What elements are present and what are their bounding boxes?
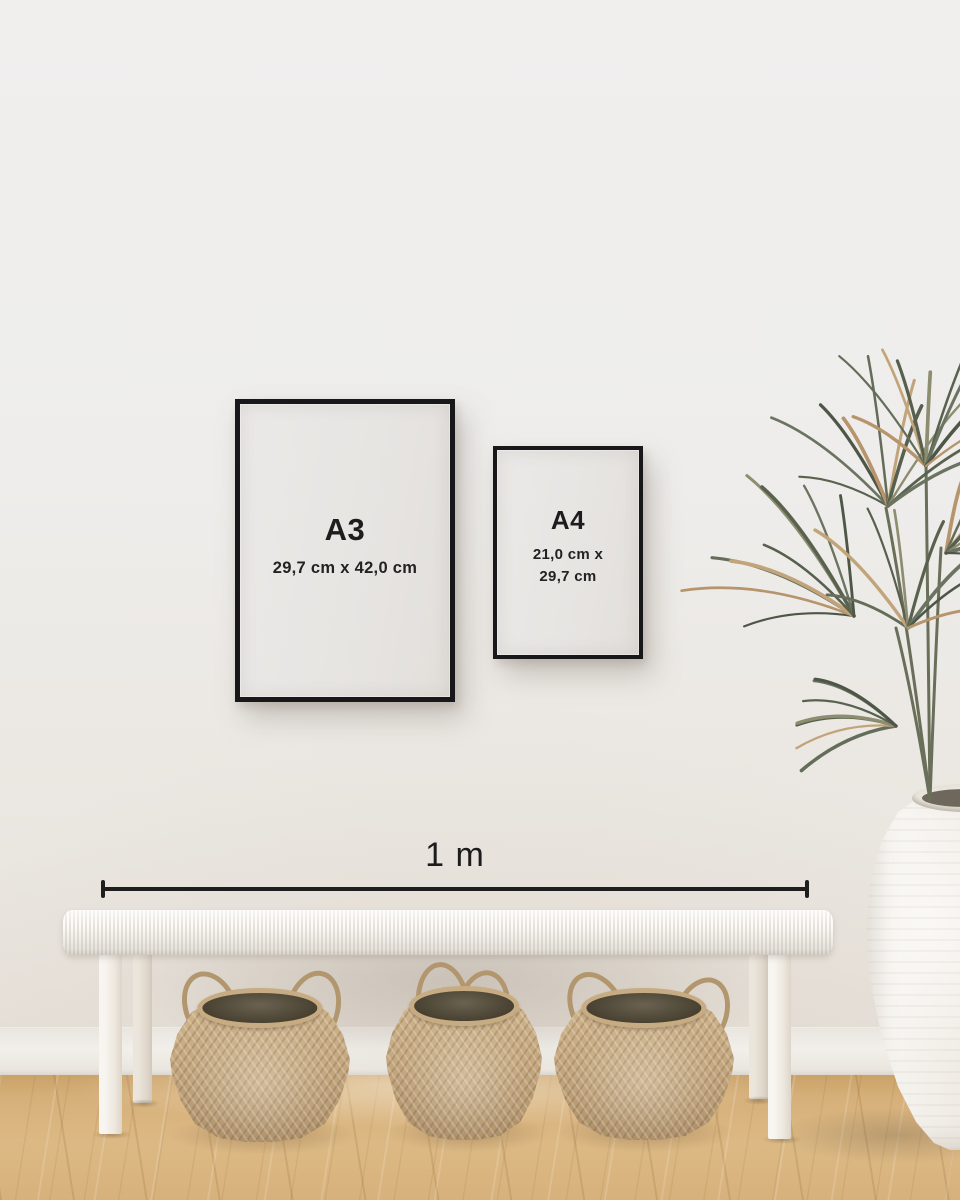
bench-leg-back-right — [749, 948, 768, 1099]
frame-dimensions-a3: 29,7 cm x 42,0 cm — [273, 559, 418, 578]
leg-shadow — [128, 1099, 160, 1108]
belly-basket-right — [554, 968, 734, 1140]
poster-paper-a3: A3 29,7 cm x 42,0 cm — [240, 404, 450, 697]
scale-bar-tick-left — [101, 880, 105, 898]
belly-basket-middle — [386, 966, 542, 1140]
bench-leg-front-right — [768, 948, 791, 1139]
bench-leg-back-left — [133, 948, 152, 1103]
frame-size-label-a4: A4 — [533, 505, 603, 536]
palm-plant-svg — [596, 298, 960, 810]
scale-bar-tick-right — [805, 880, 809, 898]
bench-seat — [63, 910, 833, 955]
poster-frame-a3: A3 29,7 cm x 42,0 cm — [235, 399, 455, 702]
vase-body — [866, 798, 960, 1150]
basket-rim — [581, 988, 706, 1028]
room-scene: A3 29,7 cm x 42,0 cm A4 21,0 cm x 29,7 c… — [0, 0, 960, 1200]
bench-leg-front-left — [99, 948, 122, 1134]
belly-basket-left — [170, 968, 350, 1142]
scale-bar-label: 1 m — [103, 836, 807, 875]
frame-dimensions-a4-line2: 29,7 cm — [533, 566, 603, 589]
frame-dimensions-a4: 21,0 cm x 29,7 cm — [533, 544, 603, 589]
basket-rim — [409, 986, 519, 1026]
frame-size-label-a3: A3 — [273, 512, 418, 548]
ceramic-vase — [866, 784, 960, 1150]
frame-dimensions-a4-line1: 21,0 cm x — [533, 544, 603, 567]
scale-bar-line — [103, 887, 807, 891]
palm-plant — [596, 298, 960, 810]
basket-rim — [197, 988, 322, 1028]
